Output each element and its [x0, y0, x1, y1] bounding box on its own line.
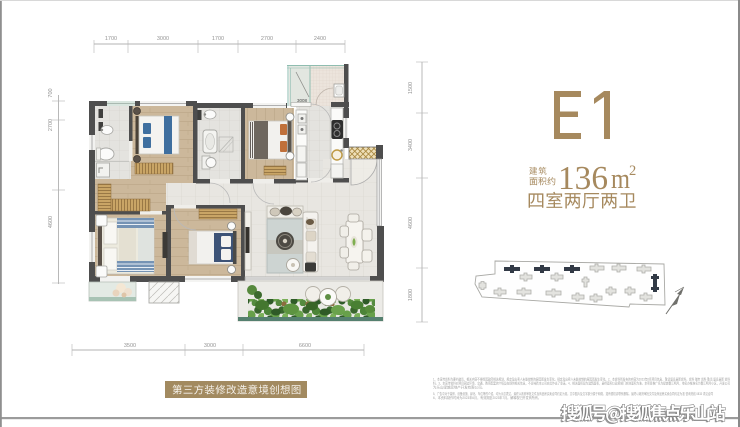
svg-text:4600: 4600: [48, 216, 54, 228]
svg-text:3500: 3500: [124, 343, 136, 349]
svg-text:1700: 1700: [212, 36, 224, 42]
svg-text:1500: 1500: [408, 82, 414, 94]
svg-text:1800: 1800: [408, 289, 414, 301]
svg-text:700: 700: [48, 88, 54, 97]
svg-text:2: 2: [629, 163, 636, 179]
svg-text:3400: 3400: [408, 139, 414, 151]
svg-text:为乐山绿城房地产开发有限公司。: 为乐山绿城房地产开发有限公司。: [433, 385, 485, 390]
svg-text:3000: 3000: [157, 36, 169, 42]
svg-text:6600: 6600: [299, 343, 311, 349]
svg-text:4600: 4600: [408, 217, 414, 229]
svg-text:1700: 1700: [105, 36, 117, 42]
svg-text:2700: 2700: [261, 36, 273, 42]
svg-text:m: m: [611, 164, 630, 195]
svg-text:3000: 3000: [204, 343, 216, 349]
svg-text:136: 136: [558, 160, 608, 197]
svg-text:2400: 2400: [314, 36, 326, 42]
svg-text:2700: 2700: [48, 119, 54, 131]
svg-text:6、本资料制作时间为2023年6月，有效期至2023年7月。: 6、本资料制作时间为2023年6月，有效期至2023年7月。解释权归开发商所有。: [433, 395, 541, 400]
